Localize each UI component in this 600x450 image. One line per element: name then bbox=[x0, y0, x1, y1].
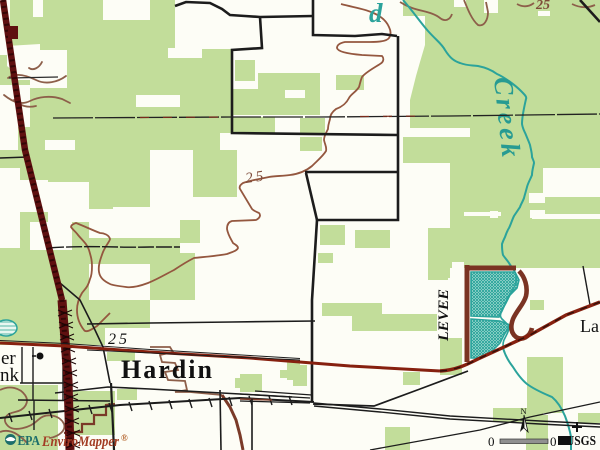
svg-text:25: 25 bbox=[535, 0, 550, 13]
svg-text:EPA: EPA bbox=[18, 433, 41, 448]
svg-text:N: N bbox=[521, 406, 527, 416]
svg-text:USGS: USGS bbox=[566, 433, 596, 448]
svg-text:®: ® bbox=[121, 433, 128, 443]
svg-text:nk: nk bbox=[0, 365, 20, 386]
svg-text:Hardin: Hardin bbox=[121, 355, 214, 384]
svg-text:La: La bbox=[580, 316, 599, 336]
svg-text:25: 25 bbox=[108, 331, 130, 348]
svg-text:0: 0 bbox=[550, 434, 557, 449]
svg-text:0: 0 bbox=[488, 434, 495, 449]
svg-text:25: 25 bbox=[244, 168, 267, 187]
svg-text:LEVEE: LEVEE bbox=[436, 289, 452, 342]
svg-text:d: d bbox=[369, 0, 383, 28]
svg-text:EnviroMapper: EnviroMapper bbox=[41, 434, 119, 450]
